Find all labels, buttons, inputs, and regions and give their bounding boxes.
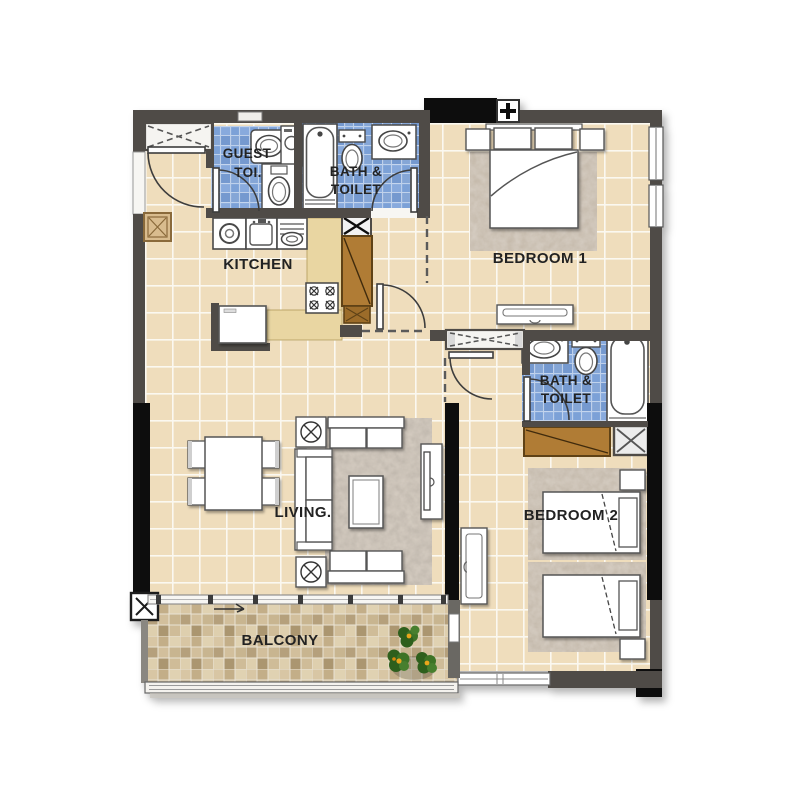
bathtub-lower-icon (607, 331, 648, 424)
twin-bed-1-pillow (619, 498, 637, 547)
bedroom1-left-wall (419, 110, 430, 213)
sliding-window-frame (148, 595, 448, 604)
wall-top (133, 110, 662, 123)
sofa-left (295, 449, 332, 550)
bedroom2-bottom-wall (548, 671, 662, 688)
shaft-x-box (342, 216, 371, 236)
bedroom1-bottom-wall-right (522, 330, 650, 341)
column-right-black (647, 403, 662, 600)
balcony-right-window (449, 614, 459, 642)
foyer-mat (144, 213, 171, 241)
pillow-right (535, 128, 572, 149)
nightstand-b2-bottom (620, 639, 645, 659)
tall-wood-cabinet (342, 236, 372, 323)
wall-stub-under-cabinet (340, 325, 362, 337)
coffee-table (349, 476, 383, 528)
guest-toilet-label-1: GUEST (223, 146, 272, 161)
top-cross-box (497, 100, 519, 122)
bedroom2-label: BEDROOM 2 (524, 507, 618, 524)
sofa-bottom (328, 551, 404, 583)
dining-table (205, 437, 262, 510)
guest-toilet-label-2: TOI. (234, 165, 262, 180)
bedroom1-dresser (497, 305, 573, 324)
sink-upper-icon (372, 125, 416, 159)
bath-lower-label-2: TOILET (541, 391, 592, 406)
column-left-black (133, 403, 150, 595)
nightstand-right (580, 129, 604, 150)
apartment: GUEST TOI. BATH & TOILET KITCHEN BEDROOM… (131, 98, 663, 698)
entry-gap (133, 152, 145, 214)
sofa-top (328, 417, 404, 448)
double-bed (490, 150, 578, 228)
bedroom1-label: BEDROOM 1 (493, 250, 587, 267)
balcony-label: BALCONY (242, 632, 319, 649)
bath-lower-bottom-wall (522, 421, 648, 427)
washing-machine-icon (213, 218, 246, 249)
dish-rack-icon (277, 218, 307, 249)
wall-left-upper (133, 110, 145, 152)
top-vent (238, 112, 262, 121)
entry-closet (145, 123, 212, 150)
kitchen-counter-bottom (267, 310, 342, 340)
side-table-bottom (296, 557, 326, 587)
stove-icon (306, 283, 338, 313)
twin-bed-2-pillow (619, 581, 637, 630)
guest-bath-divider (294, 123, 302, 211)
wc-lower-icon (572, 336, 600, 375)
wall-left-mid (133, 214, 145, 403)
balcony-railing (145, 682, 460, 698)
bath-upper-label-2: TOILET (331, 182, 382, 197)
ac-ledge-column (424, 98, 497, 123)
tv-unit (421, 444, 442, 519)
kitchen-label: KITCHEN (223, 256, 292, 273)
bedroom2-wardrobe (524, 427, 610, 456)
fridge-back-wall (211, 303, 219, 350)
nightstand-left (466, 129, 490, 150)
living-label: LIVING. (275, 504, 332, 521)
bath-bottom-wall-left (206, 208, 371, 218)
balcony-left-rail (141, 620, 148, 683)
fridge-base-wall (211, 343, 270, 351)
kitchen-sink-icon (246, 218, 277, 249)
shaft-lower-x-box (614, 426, 648, 455)
guest-wc-icon (262, 164, 296, 212)
bath-door-gap (371, 208, 417, 218)
bedroom2-dresser (461, 528, 487, 604)
bath-lower-label-1: BATH & (540, 373, 592, 388)
side-table-top (296, 417, 326, 447)
pillow-left (494, 128, 531, 149)
nightstand-b2-top (620, 470, 645, 490)
bath-upper-label-1: BATH & (330, 164, 382, 179)
partition-black (445, 403, 459, 600)
hall-wardrobe (446, 330, 524, 349)
floor-plan: GUEST TOI. BATH & TOILET KITCHEN BEDROOM… (0, 0, 800, 800)
wall-right-lower (650, 600, 662, 673)
